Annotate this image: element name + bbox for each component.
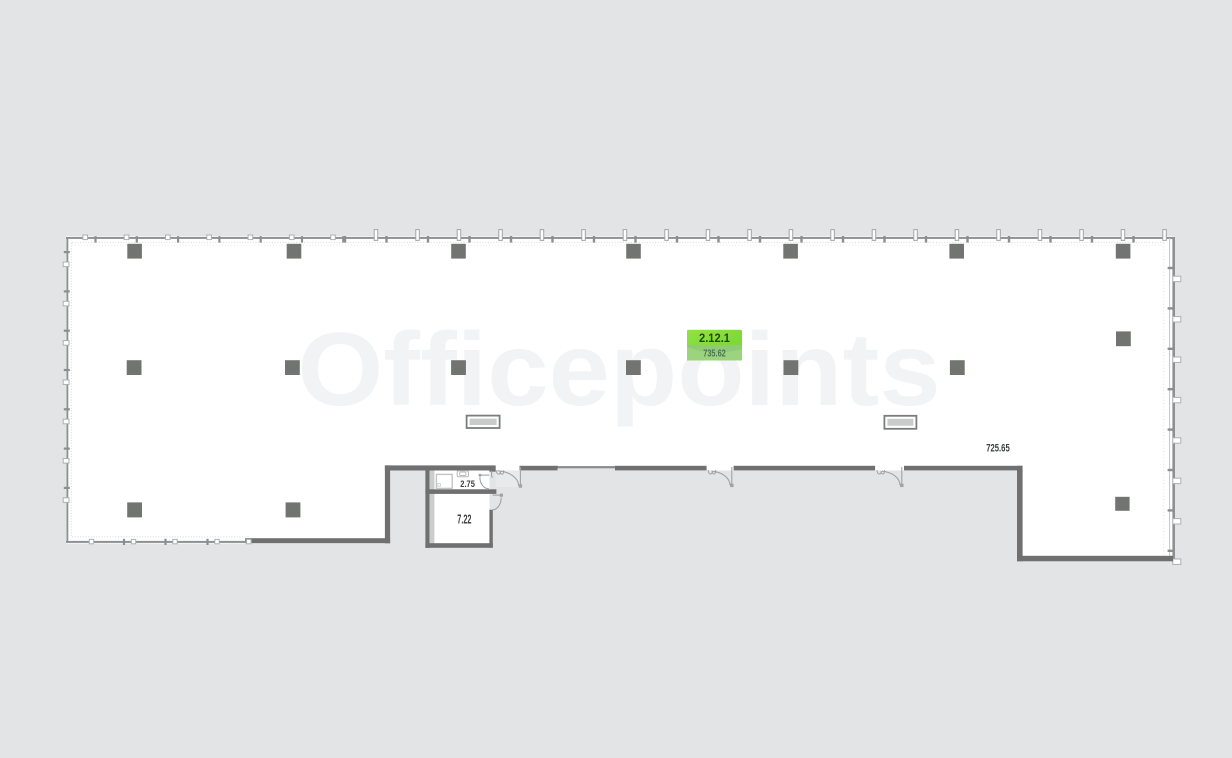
svg-text:2.75: 2.75	[460, 479, 475, 490]
svg-text:Officepoints: Officepoints	[298, 312, 941, 428]
svg-text:7.22: 7.22	[457, 511, 471, 526]
svg-text:725.65: 725.65	[986, 443, 1009, 455]
svg-text:735.62: 735.62	[703, 348, 726, 360]
svg-text:2.12.1: 2.12.1	[699, 331, 730, 345]
